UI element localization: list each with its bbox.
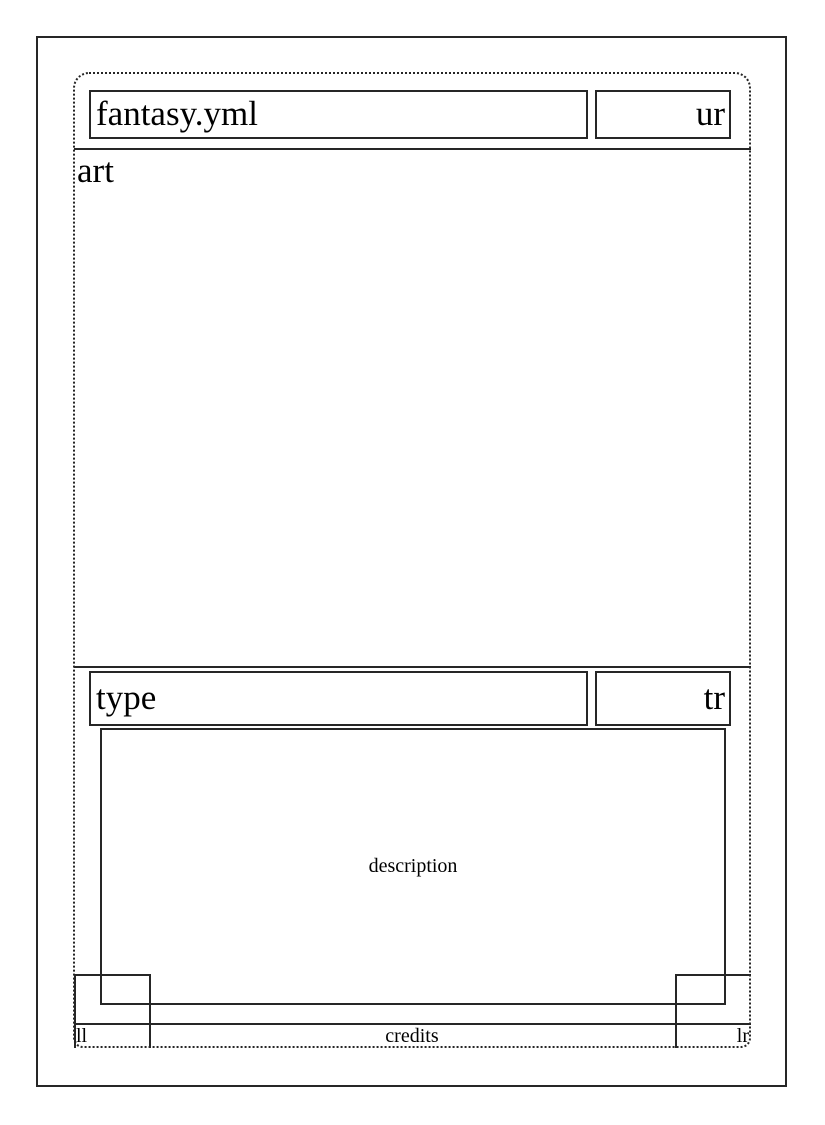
art-slot-label: art bbox=[77, 153, 114, 190]
upper-right-slot-label: ur bbox=[696, 96, 725, 133]
type-slot-label: type bbox=[96, 680, 156, 717]
name-slot-label: fantasy.yml bbox=[96, 96, 258, 133]
lower-right-label: lr bbox=[737, 1026, 749, 1047]
name-slot: fantasy.yml bbox=[89, 90, 588, 139]
type-right-slot-label: tr bbox=[704, 680, 725, 717]
type-right-slot: tr bbox=[595, 671, 731, 726]
description-slot-label: description bbox=[369, 856, 458, 877]
credits-bar: ll credits lr bbox=[74, 1023, 751, 1048]
type-slot: type bbox=[89, 671, 588, 726]
credits-label: credits bbox=[385, 1026, 438, 1047]
card-template-page: fantasy.yml ur art type tr description l… bbox=[0, 0, 825, 1125]
art-slot: art bbox=[74, 148, 751, 668]
description-slot: description bbox=[100, 728, 726, 1005]
lower-left-label: ll bbox=[76, 1026, 87, 1047]
upper-right-slot: ur bbox=[595, 90, 731, 139]
